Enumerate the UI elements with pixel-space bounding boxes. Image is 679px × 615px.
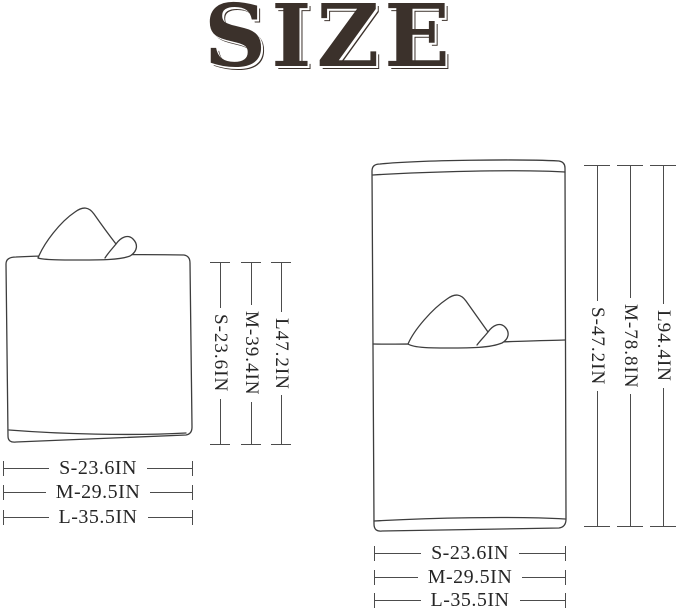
dim-line <box>519 553 565 554</box>
left-width-label-l: L-35.5IN <box>49 506 148 529</box>
unfolded-hooded-towel-illustration <box>360 150 590 540</box>
size-chart-page: SIZE S-23.6IN M-39.4IN L47.2IN S-23.6IN <box>0 0 679 615</box>
left-height-dim-l: L47.2IN <box>271 262 291 445</box>
dim-line <box>281 263 282 312</box>
dim-line <box>375 553 421 554</box>
dim-tick <box>565 593 566 608</box>
dim-line <box>522 577 565 578</box>
dim-line <box>663 166 664 304</box>
dim-line <box>220 263 221 308</box>
dim-line <box>4 468 49 469</box>
left-height-label-s: S-23.6IN <box>209 308 231 398</box>
folded-hooded-towel-illustration <box>0 200 205 455</box>
dim-line <box>4 517 49 518</box>
right-width-dim-m: M-29.5IN <box>374 569 566 585</box>
right-height-label-s: S-47.2IN <box>586 301 608 391</box>
dim-line <box>147 468 192 469</box>
right-height-label-m: M-78.8IN <box>619 298 641 395</box>
dim-line <box>375 600 421 601</box>
page-title: SIZE <box>0 0 669 80</box>
right-width-label-m: M-29.5IN <box>418 566 523 589</box>
dim-tick <box>565 546 566 561</box>
right-width-dim-l: L-35.5IN <box>374 592 566 608</box>
dim-line <box>251 402 252 444</box>
right-width-label-l: L-35.5IN <box>421 589 520 612</box>
dim-cap <box>617 526 643 527</box>
left-height-label-m: M-39.4IN <box>240 305 262 402</box>
dim-line <box>251 263 252 305</box>
left-width-dim-s: S-23.6IN <box>3 460 193 476</box>
dim-line <box>4 492 46 493</box>
dim-line <box>597 166 598 301</box>
left-height-label-l: L47.2IN <box>270 312 292 396</box>
dim-cap <box>241 444 261 445</box>
dim-line <box>630 166 631 298</box>
left-width-dim-l: L-35.5IN <box>3 509 193 525</box>
dim-cap <box>584 526 610 527</box>
right-height-dim-m: M-78.8IN <box>617 165 643 527</box>
right-width-label-s: S-23.6IN <box>421 542 519 565</box>
right-height-label-l: L94.4IN <box>652 304 674 388</box>
left-width-label-m: M-29.5IN <box>46 481 151 504</box>
dim-line <box>220 399 221 444</box>
right-width-dim-s: S-23.6IN <box>374 545 566 561</box>
right-height-dim-l: L94.4IN <box>650 165 676 527</box>
dim-tick <box>192 461 193 476</box>
dim-cap <box>271 444 291 445</box>
dim-line <box>148 517 193 518</box>
dim-cap <box>210 444 230 445</box>
dim-line <box>281 395 282 444</box>
dim-tick <box>192 485 193 500</box>
dim-line <box>150 492 192 493</box>
dim-line <box>520 600 566 601</box>
dim-line <box>375 577 418 578</box>
dim-tick <box>192 510 193 525</box>
left-width-dim-m: M-29.5IN <box>3 484 193 500</box>
left-height-dim-s: S-23.6IN <box>210 262 230 445</box>
dim-cap <box>650 526 676 527</box>
dim-line <box>597 391 598 526</box>
left-height-dim-m: M-39.4IN <box>241 262 261 445</box>
left-width-label-s: S-23.6IN <box>49 457 147 480</box>
right-height-dim-s: S-47.2IN <box>584 165 610 527</box>
dim-tick <box>565 570 566 585</box>
dim-line <box>630 394 631 526</box>
dim-line <box>663 388 664 526</box>
